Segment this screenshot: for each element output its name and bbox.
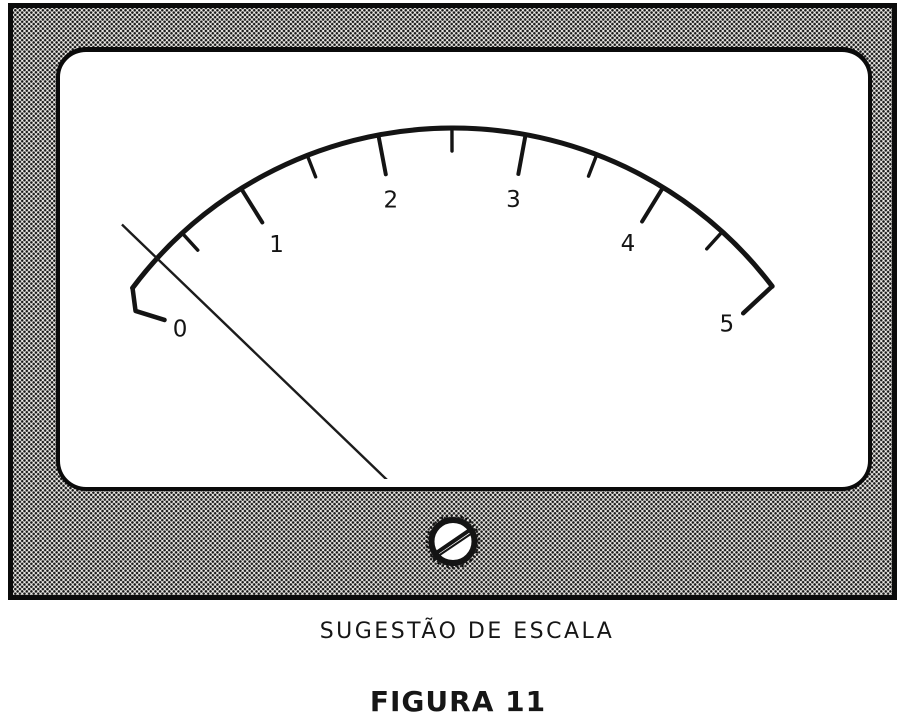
scale-label: 1 (269, 232, 284, 258)
scale-label: 2 (383, 187, 398, 213)
minor-tick (307, 155, 315, 176)
minor-tick (707, 232, 722, 249)
meter-dial-drawing: 012345 (0, 0, 908, 725)
adjustment-screw (427, 516, 479, 568)
scale-label: 0 (173, 317, 188, 343)
scale-label: 5 (720, 311, 735, 337)
scale-caption: SUGESTÃO DE ESCALA (320, 619, 615, 644)
needle-group (122, 225, 453, 543)
scale-end-hook-zero (133, 288, 165, 320)
major-tick (378, 135, 385, 174)
scale-arc-group: 012345 (133, 128, 773, 343)
minor-tick (182, 233, 198, 250)
scale-end-hook-max (743, 286, 772, 313)
major-tick (518, 135, 525, 174)
figure-label: FIGURA 11 (370, 685, 546, 718)
major-tick (642, 187, 663, 221)
needle (122, 225, 453, 543)
scale-label: 4 (621, 231, 636, 257)
minor-tick (589, 155, 597, 176)
figure-page: 012345 SUGESTÃO DE ESCALA FIGURA 11 (0, 0, 908, 725)
scale-label: 3 (506, 187, 521, 213)
major-tick (241, 189, 262, 223)
